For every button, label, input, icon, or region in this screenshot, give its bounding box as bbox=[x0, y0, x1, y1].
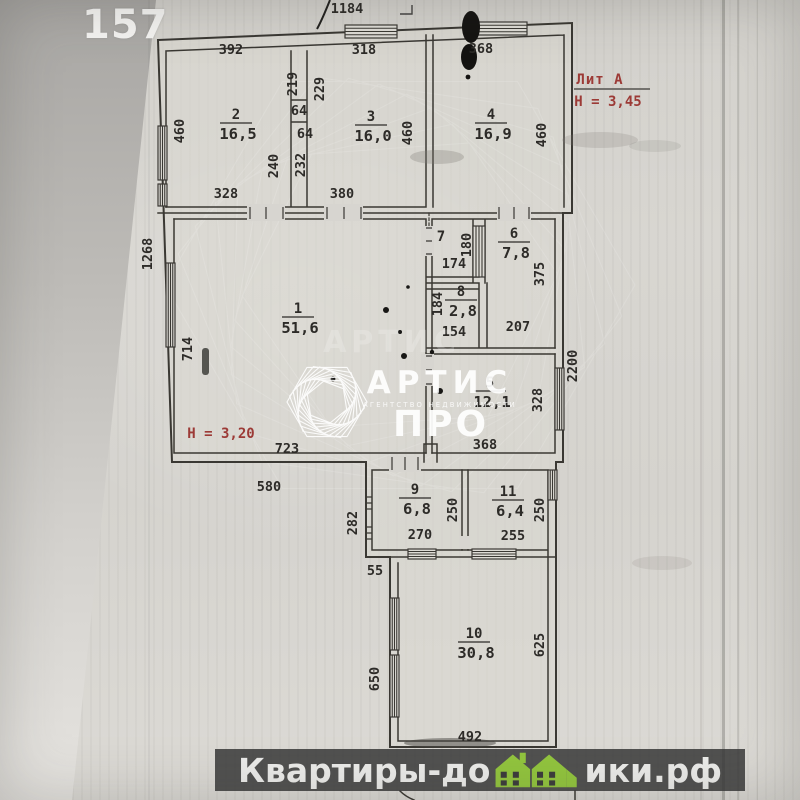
dimension-label: 460 bbox=[172, 119, 188, 143]
dimension-label: 328 bbox=[530, 388, 546, 412]
room-number: 3 bbox=[367, 109, 375, 125]
dimension-label: 250 bbox=[532, 498, 548, 522]
dimension-label: 1268 bbox=[140, 238, 156, 271]
room-area: 7,8 bbox=[502, 244, 530, 262]
dimension-label: 255 bbox=[501, 528, 525, 544]
room-area: 16,5 bbox=[219, 125, 256, 143]
room-number: 2 bbox=[232, 107, 240, 123]
height-lower-label: Н = 3,20 bbox=[187, 426, 254, 442]
dimension-label: 207 bbox=[506, 319, 530, 335]
dimension-label: 2200 bbox=[565, 350, 581, 383]
dimension-label: 650 bbox=[367, 667, 383, 691]
dimension-label: 250 bbox=[445, 498, 461, 522]
dimension-label: 64 bbox=[291, 103, 307, 119]
window-hatch bbox=[390, 598, 399, 650]
dimension-label: 229 bbox=[312, 77, 328, 101]
site-name-left: Квартиры-до bbox=[238, 754, 490, 787]
room-area: 30,8 bbox=[457, 644, 494, 662]
room-area: 6,4 bbox=[496, 502, 524, 520]
dimension-label: 723 bbox=[275, 441, 299, 457]
window-hatch bbox=[408, 549, 436, 559]
room-area: 6,8 bbox=[403, 500, 431, 518]
window-hatch bbox=[166, 263, 175, 347]
dimension-label: 714 bbox=[180, 337, 196, 361]
dimension-label: 460 bbox=[400, 121, 416, 145]
dimension-label: 180 bbox=[459, 233, 475, 257]
dimension-label: 460 bbox=[534, 123, 550, 147]
window-hatch bbox=[345, 25, 397, 38]
dimension-label: 492 bbox=[458, 729, 482, 745]
dimension-label: 328 bbox=[214, 186, 238, 202]
site-watermark-bar: Квартиры-до ики.рф bbox=[215, 749, 745, 791]
window-hatch bbox=[158, 126, 167, 180]
room-number: 6 bbox=[510, 226, 518, 242]
dimension-label: 55 bbox=[367, 563, 383, 579]
green-houses-icon bbox=[493, 751, 581, 789]
window-hatch bbox=[548, 470, 557, 500]
watermark-brand-text: АРТИС bbox=[367, 365, 514, 401]
window-hatch bbox=[472, 22, 527, 35]
dimension-label: 174 bbox=[442, 256, 466, 272]
room-number: 4 bbox=[487, 107, 495, 123]
window-hatch bbox=[390, 655, 399, 717]
window-hatch bbox=[472, 549, 516, 559]
dimension-label: 318 bbox=[352, 42, 376, 58]
dimension-label: 1184 bbox=[331, 1, 364, 17]
room-area: 2,8 bbox=[449, 302, 477, 320]
dimension-label: 392 bbox=[219, 42, 243, 58]
window-hatch bbox=[555, 368, 564, 430]
dimension-label: 184 bbox=[430, 292, 446, 316]
dimension-label: 232 bbox=[293, 153, 309, 177]
room-number: 9 bbox=[411, 482, 419, 498]
room-number: 1 bbox=[294, 301, 302, 317]
dimension-label: 219 bbox=[285, 72, 301, 96]
site-name-right: ики.рф bbox=[584, 754, 722, 787]
dimension-label: 368 bbox=[469, 41, 493, 57]
room-number: 8 bbox=[457, 284, 465, 300]
dimension-label: 625 bbox=[532, 633, 548, 657]
watermark-ghost-text: АРТИС bbox=[323, 325, 461, 360]
room-number: 11 bbox=[500, 484, 517, 500]
photo-number-badge: 157 bbox=[82, 2, 169, 48]
lit-a-label: Лит А bbox=[576, 72, 623, 88]
room-number: 10 bbox=[466, 626, 483, 642]
dimension-label: 375 bbox=[532, 262, 548, 286]
dimension-label: 380 bbox=[330, 186, 354, 202]
room-area: 16,0 bbox=[354, 127, 391, 145]
height-upper-label: Н = 3,45 bbox=[574, 94, 641, 110]
room-number: 7 bbox=[437, 229, 445, 245]
room-area: 16,9 bbox=[474, 125, 511, 143]
dimension-label: 240 bbox=[266, 154, 282, 178]
dimension-label: 580 bbox=[257, 479, 281, 495]
window-hatch bbox=[158, 184, 167, 206]
dimension-label: 282 bbox=[345, 511, 361, 535]
floor-plan-drawing: 1184392318368460219229646424023246046032… bbox=[0, 0, 800, 800]
dimension-label: 270 bbox=[408, 527, 432, 543]
dimension-label: 64 bbox=[297, 126, 313, 142]
watermark-brand2-text: ПРО bbox=[393, 404, 489, 445]
floorplan-photo: 1184392318368460219229646424023246046032… bbox=[0, 0, 800, 800]
room-area: 51,6 bbox=[281, 319, 318, 337]
